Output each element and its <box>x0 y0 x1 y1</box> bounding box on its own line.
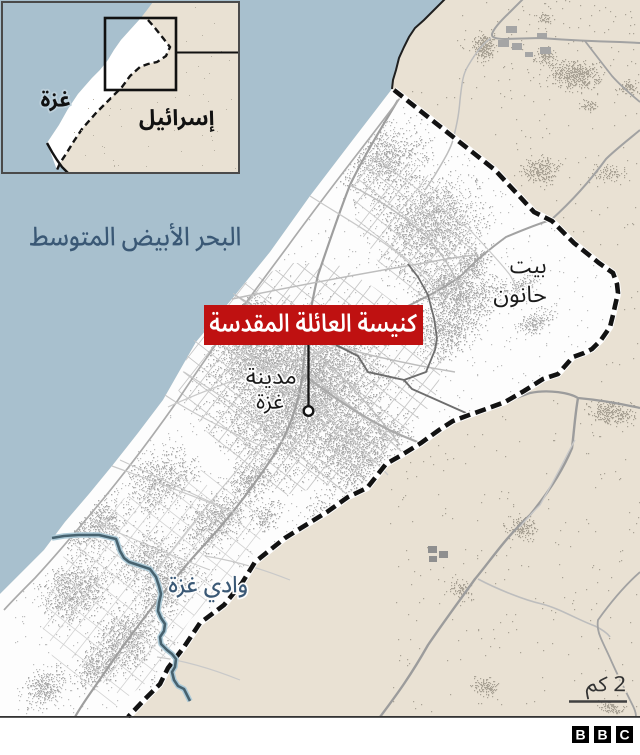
svg-text:B: B <box>597 727 607 743</box>
svg-text:B: B <box>575 727 585 743</box>
svg-text:C: C <box>619 727 629 743</box>
